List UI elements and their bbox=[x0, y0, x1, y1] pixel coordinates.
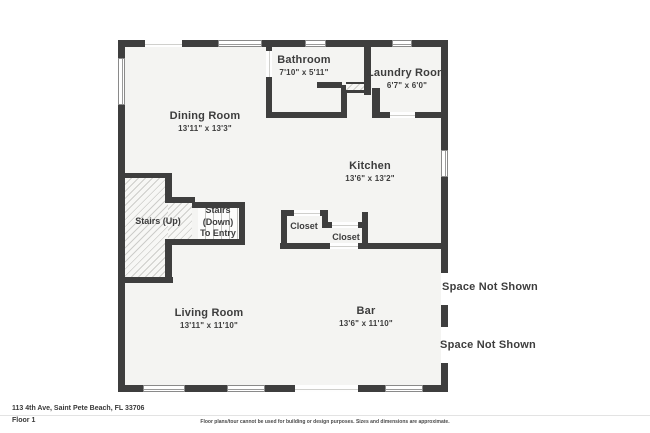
room-dims-dining: 13'11" x 13'3" bbox=[170, 124, 241, 133]
wall-stairs-right-lower bbox=[165, 243, 172, 279]
room-label-laundry: Laundry Room 6'7" x 6'0" bbox=[367, 67, 447, 90]
room-dims-kitchen: 13'6" x 13'2" bbox=[345, 174, 395, 183]
door-closet-a bbox=[294, 210, 320, 216]
wall-bathroom-bottom bbox=[266, 112, 347, 118]
wall-divider-right bbox=[358, 243, 448, 249]
room-name-laundry: Laundry Room bbox=[367, 67, 447, 80]
window-top-2 bbox=[218, 40, 262, 47]
room-label-kitchen: Kitchen 13'6" x 13'2" bbox=[345, 160, 395, 183]
room-dims-bar: 13'6" x 11'10" bbox=[339, 319, 393, 328]
window-bottom-2 bbox=[227, 385, 265, 392]
room-label-living: Living Room 13'11" x 11'10" bbox=[175, 307, 244, 330]
label-closet-b: Closet bbox=[332, 232, 360, 242]
wall-bathroom-inner-h bbox=[317, 82, 342, 88]
room-name-living: Living Room bbox=[175, 307, 244, 320]
wall-closet-b-right bbox=[362, 212, 368, 249]
door-laundry bbox=[390, 112, 415, 118]
footer-divider bbox=[0, 415, 650, 416]
room-dims-laundry: 6'7" x 6'0" bbox=[367, 81, 447, 90]
label-stairs-down-line2: (Down) bbox=[200, 217, 236, 229]
wall-stairs-top bbox=[125, 173, 170, 178]
room-label-bar: Bar 13'6" x 11'10" bbox=[339, 305, 393, 328]
window-bottom-3 bbox=[385, 385, 423, 392]
wall-closet-a-top-left bbox=[281, 210, 294, 216]
room-label-dining: Dining Room 13'11" x 13'3" bbox=[170, 110, 241, 133]
room-name-bar: Bar bbox=[339, 305, 393, 318]
room-name-dining: Dining Room bbox=[170, 110, 241, 123]
label-stairs-down-line3: To Entry bbox=[200, 228, 236, 240]
stairs-up-hatch bbox=[125, 178, 168, 277]
opening-bottom bbox=[295, 385, 358, 392]
label-space-not-shown-1: Space Not Shown bbox=[442, 281, 538, 294]
label-stairs-down-line1: Stairs bbox=[200, 205, 236, 217]
door-bathroom bbox=[266, 51, 272, 77]
window-left-1 bbox=[118, 58, 125, 105]
window-right-1 bbox=[441, 150, 448, 177]
wall-laundry-bottom-left bbox=[372, 112, 390, 118]
door-closet-b bbox=[332, 222, 358, 228]
label-space-not-shown-2: Space Not Shown bbox=[440, 339, 536, 352]
window-top-4 bbox=[392, 40, 412, 47]
room-label-bathroom: Bathroom 7'10" x 5'11" bbox=[277, 54, 331, 77]
label-stairs-down: Stairs (Down) To Entry bbox=[200, 205, 236, 240]
opening-top-1 bbox=[145, 40, 182, 47]
wall-stairsdown-bottom bbox=[192, 239, 245, 245]
label-stairs-up: Stairs (Up) bbox=[135, 216, 181, 226]
floor-plan-page: Dining Room 13'11" x 13'3" Bathroom 7'10… bbox=[0, 0, 650, 433]
wall-stairs-bottom bbox=[125, 277, 173, 283]
window-top-3 bbox=[305, 40, 326, 47]
wall-stairs-step-top bbox=[165, 197, 195, 203]
wall-laundry-bottom-right bbox=[415, 112, 448, 118]
label-closet-a: Closet bbox=[290, 221, 318, 231]
footer-address: 113 4th Ave, Saint Pete Beach, FL 33706 bbox=[12, 405, 144, 412]
footer-floor-label: Floor 1 bbox=[12, 417, 35, 424]
room-dims-bathroom: 7'10" x 5'11" bbox=[277, 68, 331, 77]
footer-disclaimer: Floor plans/tour cannot be used for buil… bbox=[200, 419, 449, 425]
room-name-kitchen: Kitchen bbox=[345, 160, 395, 173]
wall-closet-b-top-left bbox=[322, 222, 332, 228]
door-divider bbox=[330, 243, 358, 249]
room-dims-living: 13'11" x 11'10" bbox=[175, 321, 244, 330]
window-bottom-1 bbox=[143, 385, 185, 392]
room-name-bathroom: Bathroom bbox=[277, 54, 331, 67]
wall-divider-left bbox=[280, 243, 330, 249]
